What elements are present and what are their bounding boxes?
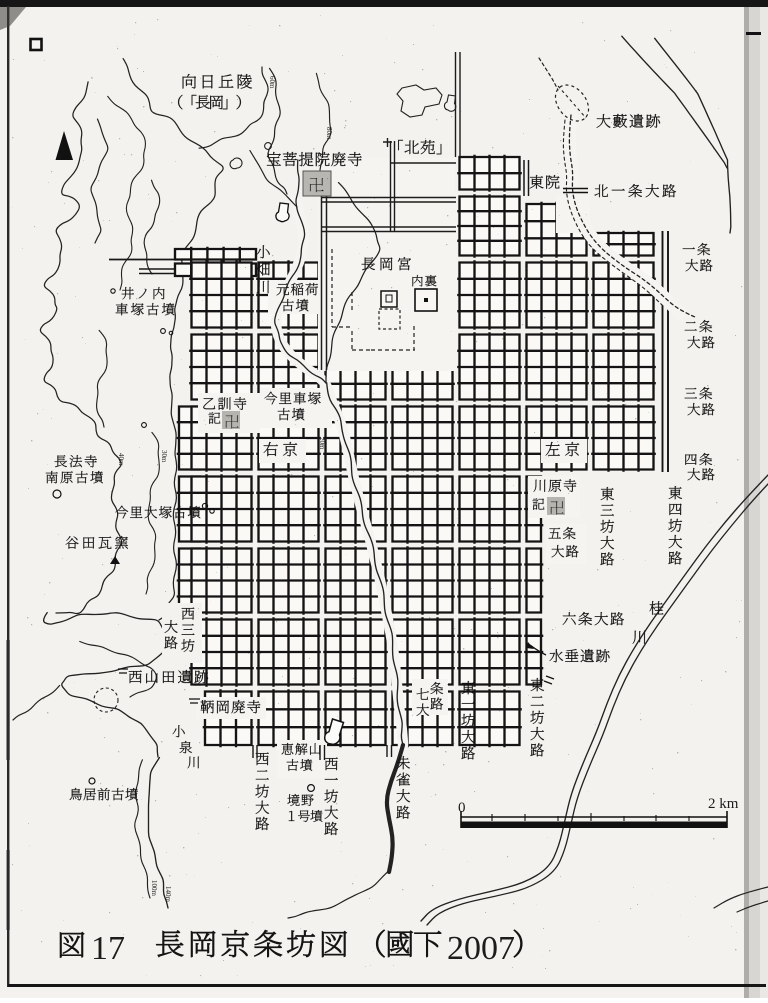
svg-text:100m: 100m bbox=[150, 880, 158, 897]
svg-text:2007: 2007 bbox=[447, 930, 515, 967]
svg-text:140m: 140m bbox=[164, 886, 172, 903]
svg-text:17: 17 bbox=[91, 930, 125, 967]
svg-text:20m: 20m bbox=[318, 437, 326, 450]
svg-text:80m: 80m bbox=[325, 127, 333, 140]
svg-text:0: 0 bbox=[458, 800, 466, 816]
svg-text:60m: 60m bbox=[268, 76, 276, 89]
svg-text:40m: 40m bbox=[117, 453, 125, 466]
svg-text:30m: 30m bbox=[160, 450, 168, 463]
svg-text:2 km: 2 km bbox=[708, 796, 739, 812]
